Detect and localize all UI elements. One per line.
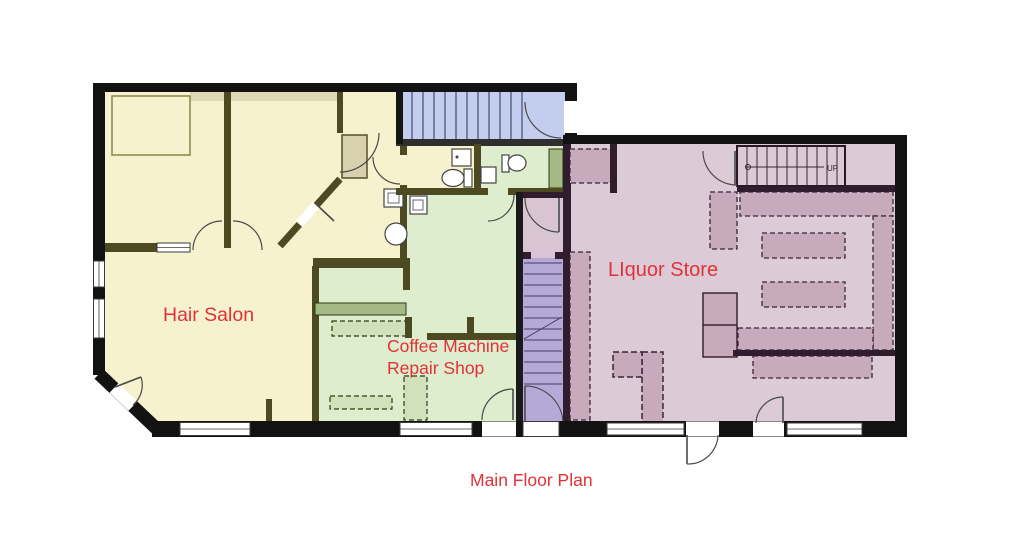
toilet-bowl <box>442 170 464 187</box>
coffee-counter-2 <box>330 396 392 409</box>
storage-cells <box>703 293 737 357</box>
top-bulkhead <box>190 92 337 101</box>
vertical-shelf <box>710 192 737 249</box>
top-shelf-band <box>740 192 893 216</box>
corridor-sink <box>410 196 427 214</box>
salon-coffee-wall-vertical <box>312 266 319 424</box>
sink <box>452 149 471 166</box>
salon-interior-window <box>157 243 190 252</box>
toilet-bowl <box>508 155 526 171</box>
salon-wall-post <box>266 399 272 422</box>
left-wall-window-2 <box>94 299 105 338</box>
coffee-bottom-window <box>400 423 472 436</box>
coffee-wall-stub-2 <box>467 317 474 338</box>
liquor-interior-door-opening <box>753 422 784 437</box>
liquor-exterior-door-opening <box>686 422 719 437</box>
coffee-shop-label-line2: Repair Shop <box>387 358 484 378</box>
coffee-counter-olive <box>315 303 406 315</box>
liquor-bottom-window-2 <box>787 423 862 435</box>
bathroom-divider-wall <box>474 144 481 194</box>
salon-coffee-wall-horizontal <box>313 258 410 268</box>
coffee-wall-stub-1 <box>405 317 412 338</box>
salon-bottom-window <box>180 423 250 436</box>
liquor-store-label: LIquor Store <box>608 259 718 281</box>
left-wall-shelf <box>570 252 590 420</box>
bath-shelf <box>549 149 563 188</box>
wash-basin <box>385 223 407 245</box>
floor-plan-canvas: UP <box>0 0 1024 547</box>
floor-plan-page: UP <box>0 0 1024 547</box>
salon-lower-wall <box>99 243 157 252</box>
stairwell-left-wall <box>516 192 523 424</box>
stair-exit-opening <box>564 101 578 133</box>
stair-post-right <box>555 252 563 259</box>
right-wall-shelf <box>873 216 893 350</box>
entry-staircase-floor <box>399 88 571 144</box>
salon-coffee-wall-hook <box>403 266 410 290</box>
coffee-shop-label-line1: Coffee Machine <box>387 336 509 356</box>
coffee-entrance-opening <box>482 422 516 437</box>
liquor-bottom-window-1 <box>607 423 684 435</box>
liquor-top-wall <box>563 135 907 144</box>
stair-left-wall <box>396 88 403 144</box>
liquor-right-wall <box>895 135 907 437</box>
entry-shelf <box>570 149 612 183</box>
coffee-counter-vertical <box>404 376 427 420</box>
sink <box>481 167 496 183</box>
mid-shelf-band-lower <box>753 356 872 378</box>
salon-upper-right-wall <box>337 88 343 133</box>
faucet <box>456 156 459 159</box>
stair-post-left <box>523 252 531 259</box>
stairwell-entrance-opening <box>523 422 559 437</box>
stairwell-top-wall <box>516 192 571 198</box>
stairs-up-label: UP <box>827 164 838 173</box>
salon-partition-wall <box>224 88 231 248</box>
liquor-exterior-door <box>687 435 718 464</box>
mid-shelf-band-upper <box>738 328 873 350</box>
stairwell-floor <box>520 258 568 424</box>
island-shelf-2 <box>762 282 845 307</box>
stairwell-vestibule-floor <box>520 192 568 258</box>
entry-wall-vertical <box>610 144 617 193</box>
island-shelf-1 <box>762 233 845 258</box>
top-wall-left-building <box>93 83 577 92</box>
left-wall-window-1 <box>94 261 105 287</box>
bathroom-bottom-wall-left <box>396 188 488 195</box>
mid-wall-horizontal <box>733 350 895 356</box>
toilet-tank <box>464 169 472 187</box>
stair-bottom-wall <box>396 139 571 146</box>
coffee-counter-1 <box>332 321 406 336</box>
hair-salon-label: Hair Salon <box>163 304 254 326</box>
plan-title: Main Floor Plan <box>470 470 593 490</box>
